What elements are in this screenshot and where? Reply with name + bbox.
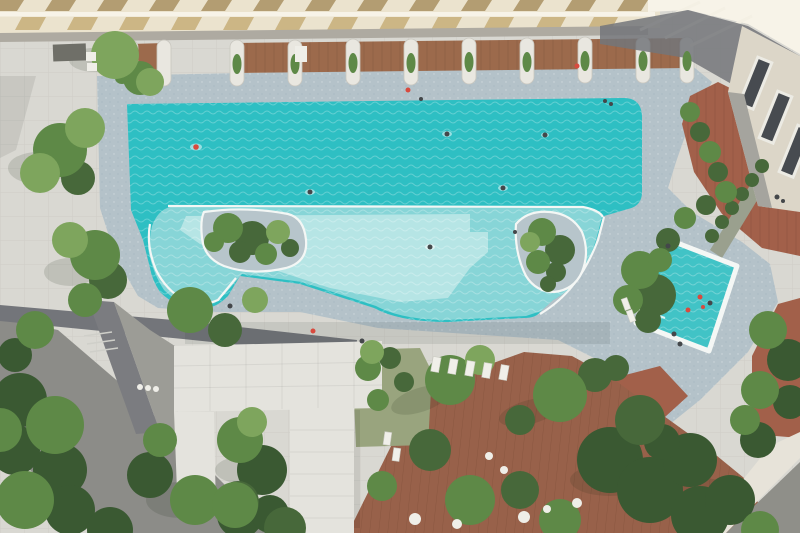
aerial-pool-photo: Aerial drone view of a condominium swimm… — [0, 0, 800, 533]
deck-shadow-band — [185, 322, 610, 344]
canopy-shadow-edge — [354, 410, 360, 528]
roof-ridge — [0, 12, 655, 17]
canopy-bar — [174, 341, 382, 412]
aerial-pool-scene: Aerial drone view of a condominium swimm… — [0, 0, 800, 533]
sawtooth-roof — [0, 0, 660, 42]
deck-mat — [53, 43, 87, 61]
